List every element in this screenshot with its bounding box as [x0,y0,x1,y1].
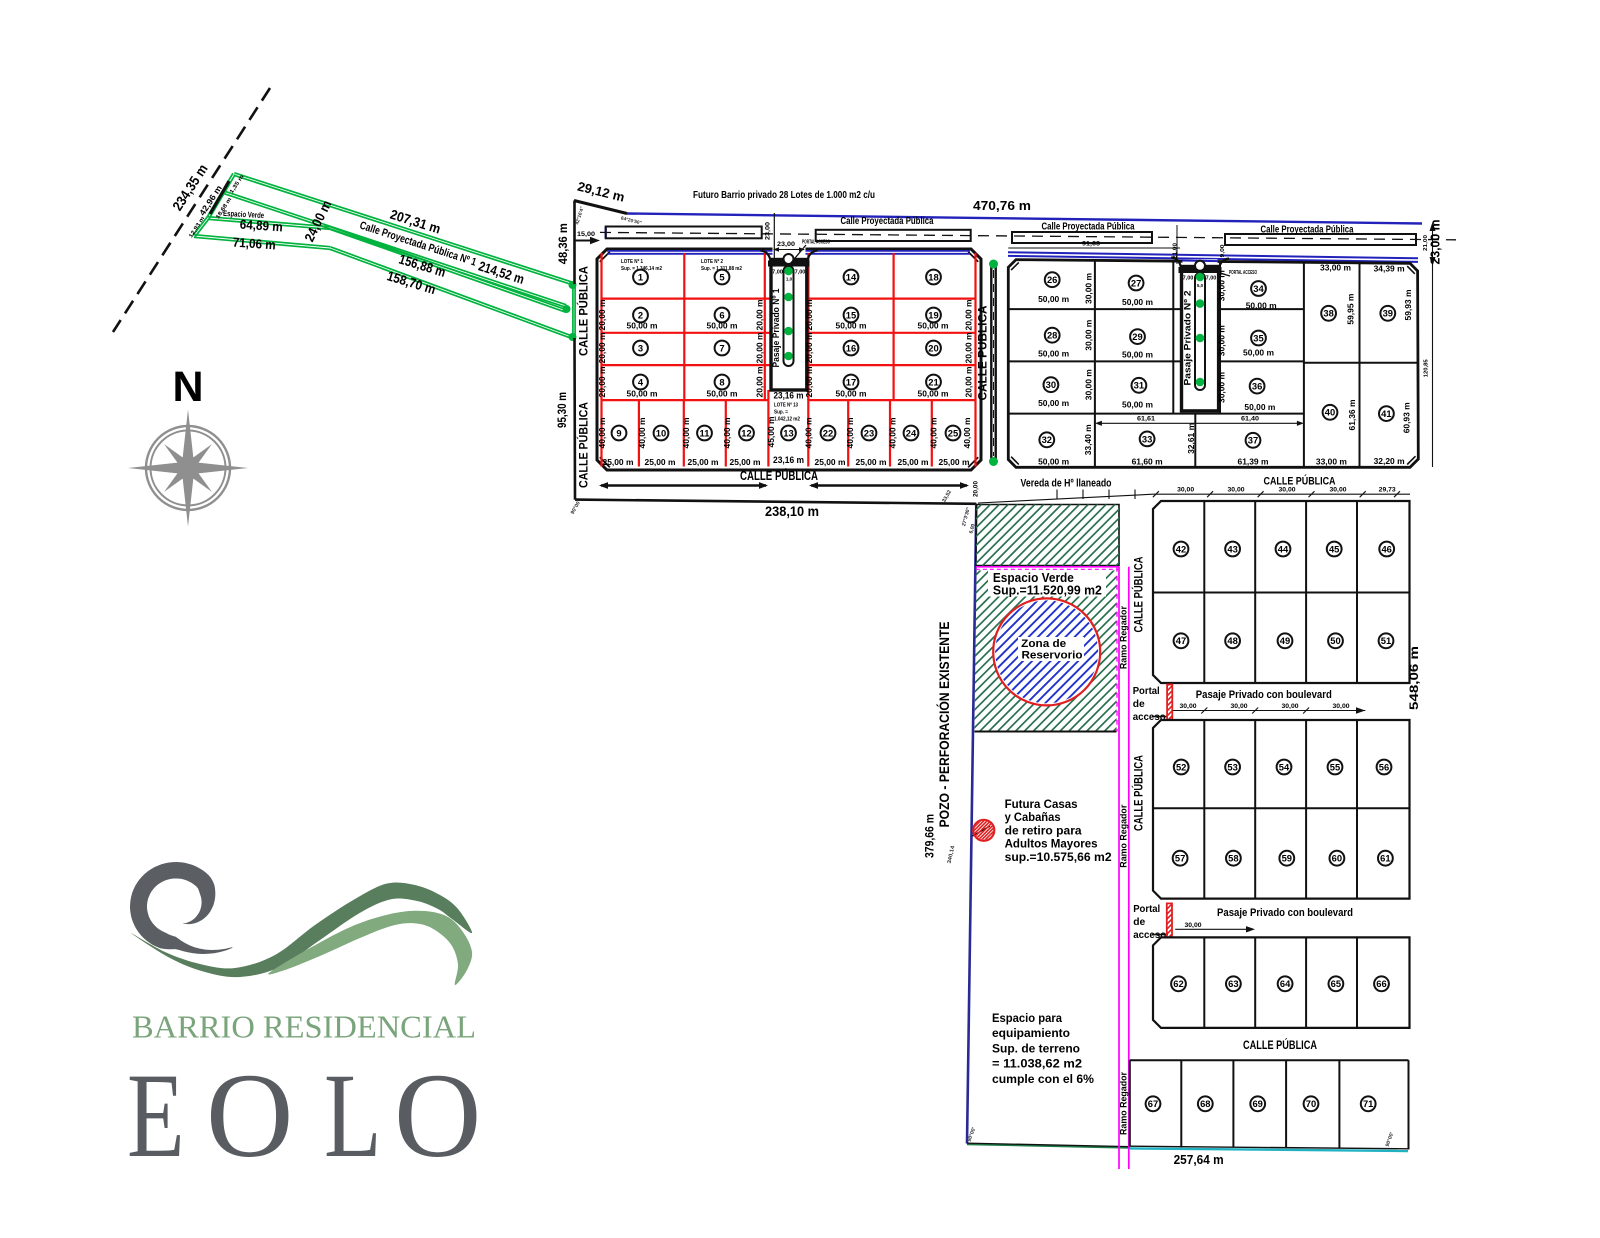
svg-text:45: 45 [1329,543,1339,554]
svg-text:40,00 m: 40,00 m [804,417,814,448]
svg-text:21: 21 [928,376,938,387]
svg-text:PORTAL ACCESO: PORTAL ACCESO [1229,270,1257,276]
svg-text:30,00: 30,00 [1333,704,1351,710]
svg-text:44: 44 [1278,543,1289,554]
svg-text:y Cabañas: y Cabañas [1005,812,1061,824]
svg-text:95,30 m: 95,30 m [557,392,569,428]
svg-text:Ramo Regador: Ramo Regador [1119,606,1130,669]
svg-text:61,61: 61,61 [1137,416,1155,423]
svg-text:4: 4 [638,376,644,387]
svg-text:33,00 m: 33,00 m [1320,263,1351,273]
svg-text:Ramo Regador: Ramo Regador [1119,804,1130,867]
svg-text:30,00 m: 30,00 m [1217,372,1227,403]
svg-text:30,00: 30,00 [1177,488,1195,494]
svg-text:50,00 m: 50,00 m [1038,398,1069,408]
svg-text:34,39 m: 34,39 m [1374,263,1405,273]
svg-text:91,63: 91,63 [1082,241,1100,248]
svg-text:33,00 m: 33,00 m [1316,457,1347,467]
svg-text:66: 66 [1376,978,1386,989]
svg-text:25,00 m: 25,00 m [645,457,676,467]
svg-text:40,00 m: 40,00 m [962,417,972,448]
svg-text:Pasaje Privado con boulevard: Pasaje Privado con boulevard [1217,907,1353,919]
svg-text:43: 43 [1227,543,1237,554]
svg-text:15,00: 15,00 [577,232,596,238]
svg-text:6: 6 [719,309,724,320]
svg-text:40,00 m: 40,00 m [722,417,732,448]
svg-text:42: 42 [1176,543,1186,554]
svg-text:30,00 m: 30,00 m [1083,273,1093,304]
svg-text:20,00 m: 20,00 m [754,332,764,363]
svg-text:CALLE PÚBLICA: CALLE PÚBLICA [1243,1039,1317,1052]
svg-text:50,00 m: 50,00 m [627,389,658,399]
svg-text:257,64 m: 257,64 m [1174,1153,1224,1167]
svg-text:Calle Proyectada Pública: Calle Proyectada Pública [841,215,934,227]
svg-text:PORTAL ACCESO: PORTAL ACCESO [802,240,830,246]
svg-text:20,00 m: 20,00 m [963,366,973,397]
svg-text:50,00 m: 50,00 m [1244,402,1275,412]
svg-text:20,00 m: 20,00 m [597,299,607,330]
svg-text:45,00 m: 45,00 m [766,416,776,447]
svg-text:46: 46 [1381,543,1391,554]
svg-text:5: 5 [719,271,724,282]
svg-text:Pasaje Privado Nº 1: Pasaje Privado Nº 1 [771,288,782,368]
svg-text:11: 11 [700,427,710,438]
svg-text:67: 67 [1148,1098,1158,1109]
svg-text:20,00 m: 20,00 m [804,332,814,363]
svg-text:O: O [206,1049,293,1183]
svg-text:50,00 m: 50,00 m [707,321,738,331]
svg-text:25,00 m: 25,00 m [730,457,761,467]
svg-text:25,00 m: 25,00 m [939,457,970,467]
svg-text:30,00: 30,00 [1185,923,1203,929]
svg-text:61,60 m: 61,60 m [1132,457,1163,467]
svg-text:379,66 m: 379,66 m [925,814,937,858]
svg-text:39: 39 [1383,308,1393,319]
svg-text:equipamiento: equipamiento [992,1028,1070,1040]
svg-text:20,00 m: 20,00 m [597,332,607,363]
svg-text:548,06 m: 548,06 m [1407,646,1421,710]
svg-text:1,0: 1,0 [786,277,793,282]
svg-text:49: 49 [1280,635,1290,646]
svg-text:50,00 m: 50,00 m [1038,294,1069,304]
svg-text:7,00: 7,00 [1183,276,1194,282]
svg-text:7,00: 7,00 [772,270,783,276]
svg-text:CALLE PÚBLICA: CALLE PÚBLICA [576,266,591,356]
svg-text:60: 60 [1332,853,1342,864]
svg-text:25,00 m: 25,00 m [688,457,719,467]
svg-text:48,36 m: 48,36 m [558,223,570,264]
svg-text:24: 24 [906,427,917,438]
svg-text:cumple con el 6%: cumple con el 6% [992,1074,1094,1086]
svg-text:64: 64 [1280,978,1291,989]
svg-text:17: 17 [846,376,856,387]
svg-text:68: 68 [1200,1098,1210,1109]
svg-text:59,95 m: 59,95 m [1345,293,1355,324]
svg-text:64,89 m: 64,89 m [239,217,283,235]
svg-text:de: de [1133,916,1145,928]
svg-text:19: 19 [928,309,938,320]
svg-text:32,61 m: 32,61 m [1186,422,1196,453]
svg-text:30,00 m: 30,00 m [1083,369,1093,400]
svg-text:30: 30 [1046,379,1056,390]
svg-text:57: 57 [1175,853,1185,864]
svg-text:14: 14 [846,271,857,282]
svg-text:29: 29 [1132,331,1142,342]
svg-text:23,16 m: 23,16 m [774,391,804,401]
svg-text:Pasaje Privado con boulevard: Pasaje Privado con boulevard [1196,689,1332,701]
svg-text:20: 20 [928,342,938,353]
svg-text:CALLE PÚBLICA: CALLE PÚBLICA [1133,557,1146,633]
svg-text:15: 15 [846,309,856,320]
svg-text:O: O [394,1049,481,1183]
svg-text:40,00 m: 40,00 m [637,417,647,448]
svg-text:71,06 m: 71,06 m [232,235,276,253]
svg-text:40,00 m: 40,00 m [888,417,898,448]
svg-text:9,00: 9,00 [1220,245,1226,258]
svg-text:28: 28 [1047,330,1057,341]
svg-text:50,00 m: 50,00 m [1246,301,1277,311]
svg-text:32,20 m: 32,20 m [1374,456,1405,466]
svg-text:sup.=10.575,66 m2: sup.=10.575,66 m2 [1005,852,1112,864]
svg-text:Reservorio: Reservorio [1022,650,1083,662]
svg-text:25,00 m: 25,00 m [898,457,929,467]
svg-text:POZO - PERFORACIÓN EXISTENTE: POZO - PERFORACIÓN EXISTENTE [937,622,952,828]
svg-text:CALLE PÚBLICA: CALLE PÚBLICA [1264,475,1336,488]
svg-text:34: 34 [1253,283,1264,294]
svg-text:Sup. de terreno: Sup. de terreno [992,1043,1080,1055]
svg-text:470,76 m: 470,76 m [973,199,1031,213]
svg-text:50,00 m: 50,00 m [836,389,867,399]
svg-text:61,39 m: 61,39 m [1238,457,1269,467]
svg-text:38: 38 [1323,308,1333,319]
svg-text:20,00 m: 20,00 m [754,299,764,330]
svg-text:50,00 m: 50,00 m [1122,400,1153,410]
svg-text:36: 36 [1252,380,1262,391]
svg-text:LOTE Nº 2: LOTE Nº 2 [701,259,723,265]
svg-text:30,00: 30,00 [1180,704,1198,710]
svg-text:23,16 m: 23,16 m [773,455,804,465]
svg-text:23,00: 23,00 [765,222,772,240]
svg-text:40,00 m: 40,00 m [929,417,939,448]
svg-text:31: 31 [1134,380,1144,391]
svg-text:54: 54 [1279,761,1290,772]
svg-text:61,36 m: 61,36 m [1347,399,1357,430]
svg-text:58: 58 [1228,853,1238,864]
svg-text:30,00: 30,00 [1282,704,1300,710]
svg-text:9: 9 [616,427,621,438]
svg-text:Espacio para: Espacio para [992,1013,1063,1025]
svg-text:41: 41 [1381,408,1391,419]
svg-text:70: 70 [1306,1098,1316,1109]
svg-text:50,00 m: 50,00 m [1038,457,1069,467]
svg-text:20,00 m: 20,00 m [963,332,973,363]
svg-text:30,00 m: 30,00 m [1083,319,1093,350]
svg-text:21,00: 21,00 [1173,243,1179,259]
svg-text:48: 48 [1227,635,1237,646]
svg-text:61,40: 61,40 [1241,416,1259,423]
svg-text:23,00: 23,00 [777,241,795,248]
svg-text:37: 37 [1248,435,1258,446]
svg-text:16: 16 [846,342,856,353]
svg-text:8: 8 [719,376,724,387]
svg-text:40: 40 [1325,407,1335,418]
svg-text:Sup. =: Sup. = [774,410,788,416]
svg-text:de: de [1133,698,1145,710]
svg-text:50: 50 [1330,635,1340,646]
svg-text:62: 62 [1173,978,1183,989]
svg-text:BARRIO RESIDENCIAL: BARRIO RESIDENCIAL [132,1009,476,1045]
svg-text:56: 56 [1379,761,1389,772]
svg-text:LOTE Nº 1: LOTE Nº 1 [621,259,643,265]
svg-text:Vereda de Hº llaneado: Vereda de Hº llaneado [1021,478,1112,490]
svg-text:25: 25 [948,427,958,438]
svg-text:10: 10 [656,427,666,438]
svg-text:33,40 m: 33,40 m [1083,424,1093,455]
svg-text:20,00 m: 20,00 m [804,299,814,330]
svg-text:30,00: 30,00 [1228,488,1246,494]
svg-text:CALLE PÚBLICA: CALLE PÚBLICA [1133,755,1146,831]
svg-text:Pasaje Privado Nº 2: Pasaje Privado Nº 2 [1183,291,1194,386]
svg-text:25,00 m: 25,00 m [856,457,887,467]
svg-text:47: 47 [1176,635,1186,646]
svg-text:Adultos Mayores: Adultos Mayores [1005,839,1098,851]
svg-text:CALLE PUBLICA: CALLE PUBLICA [976,305,990,400]
svg-text:50,00 m: 50,00 m [1038,349,1069,359]
svg-text:1.042,12 m2: 1.042,12 m2 [774,417,800,423]
svg-text:30,00: 30,00 [1330,488,1348,494]
svg-text:LOTE Nº 13: LOTE Nº 13 [774,403,798,409]
svg-text:50,00 m: 50,00 m [707,389,738,399]
svg-text:CALLE PÚBLICA: CALLE PÚBLICA [576,402,591,488]
svg-text:Calle Proyectada Pública: Calle Proyectada Pública [1261,224,1354,236]
svg-text:238,10 m: 238,10 m [765,503,819,519]
svg-text:40,00 m: 40,00 m [681,417,691,448]
svg-text:Portal: Portal [1133,903,1160,915]
svg-text:5,0: 5,0 [1197,283,1204,288]
svg-text:20,00 m: 20,00 m [754,366,764,397]
svg-text:2: 2 [638,309,643,320]
svg-text:25,00 m: 25,00 m [815,457,846,467]
svg-text:7,00: 7,00 [795,270,806,276]
svg-text:50,00 m: 50,00 m [836,321,867,331]
svg-text:Sup.=11.520,99 m2: Sup.=11.520,99 m2 [993,584,1102,598]
svg-text:Futuro Barrio privado 28 Lotes: Futuro Barrio privado 28 Lotes de 1.000 … [693,189,875,201]
svg-text:22: 22 [823,427,833,438]
svg-text:50,00 m: 50,00 m [627,321,658,331]
svg-text:40,00 m: 40,00 m [597,417,607,448]
svg-text:Calle Proyectada Pública: Calle Proyectada Pública [1042,221,1135,233]
svg-text:50,00 m: 50,00 m [1243,348,1274,358]
svg-text:50,00 m: 50,00 m [918,321,949,331]
svg-text:20,00 m: 20,00 m [963,299,973,330]
svg-text:13: 13 [783,427,793,438]
svg-text:50,00 m: 50,00 m [918,389,949,399]
svg-text:35: 35 [1253,332,1263,343]
svg-text:23: 23 [864,427,874,438]
svg-text:18: 18 [928,271,938,282]
svg-text:= 11.038,62 m2: = 11.038,62 m2 [992,1059,1082,1071]
svg-text:7,00: 7,00 [1206,276,1217,282]
svg-text:40,00 m: 40,00 m [845,417,855,448]
svg-text:65: 65 [1331,978,1341,989]
svg-text:1: 1 [638,271,643,282]
svg-text:60,93 m: 60,93 m [1402,402,1412,433]
svg-text:29,73: 29,73 [1379,488,1397,494]
svg-text:Zona de: Zona de [1021,638,1066,650]
svg-text:CALLE PÚBLICA: CALLE PÚBLICA [740,468,818,483]
svg-text:59: 59 [1282,853,1292,864]
svg-text:27: 27 [1131,277,1141,288]
svg-text:L: L [324,1049,382,1183]
svg-text:50,00 m: 50,00 m [1122,350,1153,360]
svg-text:20,00: 20,00 [974,480,980,497]
svg-text:Portal: Portal [1133,685,1160,697]
svg-text:30,00: 30,00 [1231,704,1249,710]
svg-text:E: E [127,1049,185,1183]
svg-text:25,00 m: 25,00 m [603,457,634,467]
svg-text:N: N [172,363,203,411]
svg-text:30,00: 30,00 [1279,488,1297,494]
svg-text:23,00 m: 23,00 m [1429,220,1443,265]
svg-text:51: 51 [1381,635,1391,646]
svg-text:7: 7 [719,342,724,353]
svg-text:50,00 m: 50,00 m [1122,297,1153,307]
svg-text:120,85: 120,85 [1424,359,1430,377]
svg-text:52: 52 [1176,761,1186,772]
svg-text:63: 63 [1228,978,1238,989]
svg-text:Ramo Regador: Ramo Regador [1119,1072,1130,1135]
svg-text:3: 3 [638,342,643,353]
svg-text:12: 12 [741,427,751,438]
svg-text:33: 33 [1142,433,1152,444]
svg-text:de retiro para: de retiro para [1005,825,1083,837]
svg-text:59,93 m: 59,93 m [1403,289,1413,320]
svg-text:32: 32 [1042,434,1052,445]
svg-text:20,00 m: 20,00 m [597,366,607,397]
svg-text:Futura Casas: Futura Casas [1005,799,1078,811]
svg-text:61: 61 [1380,853,1390,864]
svg-text:30,00 m: 30,00 m [1217,325,1227,356]
svg-text:26: 26 [1047,274,1057,285]
svg-text:71: 71 [1363,1098,1373,1109]
svg-text:53: 53 [1227,761,1237,772]
svg-text:30,00 m: 30,00 m [1217,270,1227,301]
svg-text:20,00 m: 20,00 m [804,366,814,397]
svg-text:55: 55 [1330,761,1340,772]
svg-text:69: 69 [1252,1098,1262,1109]
